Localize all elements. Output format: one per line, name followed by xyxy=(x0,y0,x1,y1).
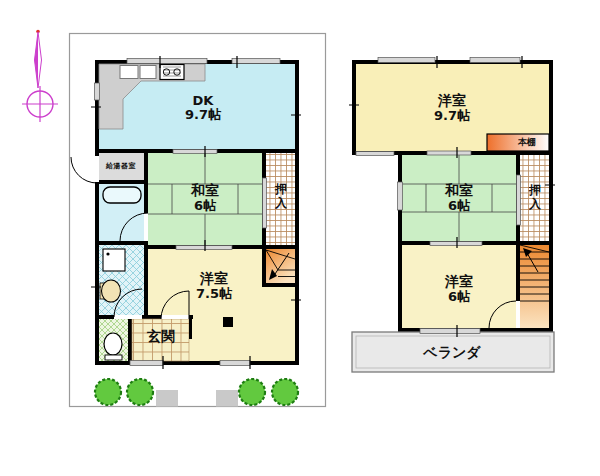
gate-post xyxy=(216,390,238,407)
stove-icon xyxy=(160,65,184,80)
compass-needle-fill xyxy=(35,32,39,88)
kitchen-sink-icon xyxy=(120,66,138,79)
window-marker xyxy=(220,361,250,366)
closet-label-oshiire-1f: 押入 xyxy=(274,183,289,211)
garden-trees xyxy=(95,379,298,405)
room-label-washitsu1f-size: 6帖 xyxy=(194,199,216,212)
door-opening xyxy=(95,156,99,182)
sliding-door-marker xyxy=(263,178,267,228)
room-label-genkan: 玄関 xyxy=(147,329,175,343)
wall-segment xyxy=(189,319,192,339)
room-label-youshitsu97-name: 洋室 xyxy=(438,93,466,107)
toilet-icon xyxy=(104,333,122,360)
room-label-washitsu2f-name: 和室 xyxy=(445,183,473,197)
room-label-dk-size: 9.7帖 xyxy=(185,108,221,121)
window-marker xyxy=(127,59,207,64)
stairs-2f xyxy=(520,245,549,328)
tree-icon xyxy=(272,379,298,405)
sliding-door-marker xyxy=(430,242,482,246)
veranda-label: ベランダ xyxy=(423,345,480,359)
washbasin-icon xyxy=(100,280,121,302)
window-marker xyxy=(398,182,403,210)
window-marker xyxy=(378,58,435,63)
room-label-washitsu2f-size: 6帖 xyxy=(448,199,470,212)
window-marker xyxy=(420,329,480,334)
room-label-youshitsu6-size: 6帖 xyxy=(448,290,470,303)
sliding-door-marker xyxy=(517,175,521,225)
floor-plan-page: DK 9.7帖 和室 6帖 押入 洋室 7.5帖 玄関 給湯器室 洋室 9.7帖… xyxy=(0,0,600,476)
room-label-youshitsu1f-name: 洋室 xyxy=(200,271,228,285)
room-label-water-heater: 給湯器室 xyxy=(106,163,136,170)
door-opening xyxy=(144,213,148,241)
room-label-youshitsu6-name: 洋室 xyxy=(445,274,473,288)
sliding-door-marker xyxy=(173,150,217,154)
sliding-door-marker xyxy=(176,246,232,250)
room-label-dk-name: DK xyxy=(193,94,214,107)
floor-plan-drawing xyxy=(0,0,600,476)
window-marker xyxy=(95,83,100,100)
compass-icon xyxy=(22,30,58,122)
building-1f xyxy=(71,56,301,369)
room-label-washitsu1f-name: 和室 xyxy=(191,183,219,197)
pillar-marker xyxy=(223,317,233,327)
window-marker xyxy=(470,58,520,63)
room-label-youshitsu1f-size: 7.5帖 xyxy=(196,287,232,300)
laundry-sink-icon xyxy=(103,249,125,271)
door-opening xyxy=(114,315,142,319)
room-label-youshitsu97-size: 9.7帖 xyxy=(434,109,470,122)
window-marker xyxy=(232,59,280,64)
tree-icon xyxy=(127,379,153,405)
gate-post xyxy=(156,390,178,407)
closet-label-oshiire-2f: 押入 xyxy=(528,184,543,212)
kitchen-sink-icon xyxy=(140,66,156,79)
tree-icon xyxy=(239,379,265,405)
bathtub-icon xyxy=(103,187,141,203)
stairs-1f xyxy=(262,249,299,287)
door-opening xyxy=(516,301,520,328)
sliding-door-marker xyxy=(427,151,471,155)
tree-icon xyxy=(95,379,121,405)
bookshelf-label: 本棚 xyxy=(518,138,536,147)
door-arc xyxy=(71,157,97,183)
entrance-door-marker xyxy=(130,361,163,366)
window-marker xyxy=(356,152,394,156)
door-opening xyxy=(161,315,189,319)
